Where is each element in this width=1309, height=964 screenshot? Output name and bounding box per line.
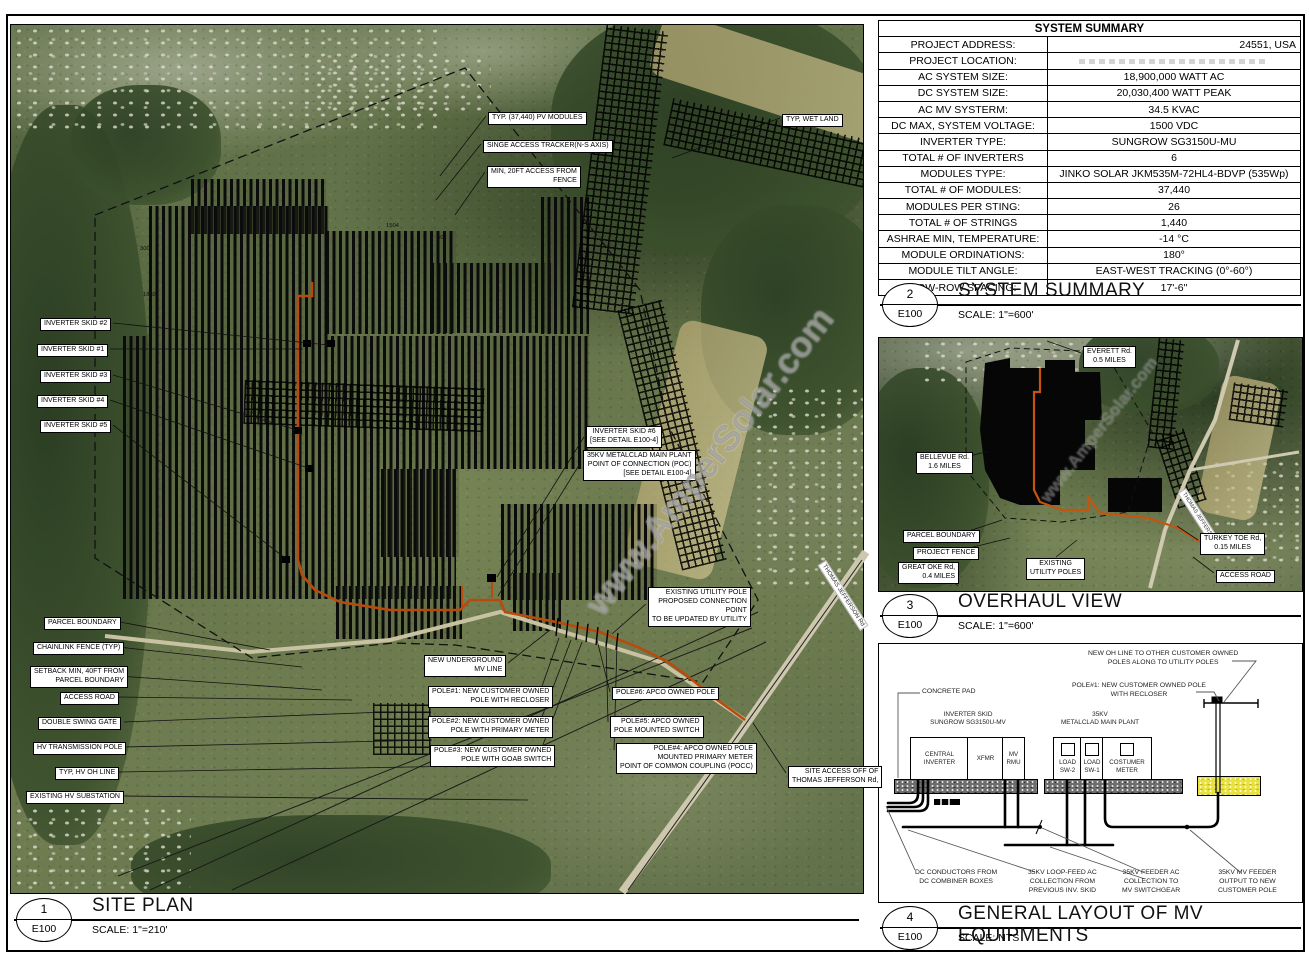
callout-pole1-recloser: POLE#1: NEW CUSTOMER OWNED POLE WITH REC… bbox=[1072, 682, 1206, 700]
switch-square-icon bbox=[1120, 743, 1134, 756]
suburb-patch bbox=[919, 338, 1079, 383]
summary-value: 6 bbox=[1048, 150, 1301, 166]
mv-box-load-sw2: LOAD SW-2 bbox=[1053, 737, 1082, 780]
summary-value: 26 bbox=[1048, 199, 1301, 215]
summary-row: MODULE ORDINATIONS:180° bbox=[879, 247, 1301, 263]
summary-label: MODULE ORDINATIONS: bbox=[879, 247, 1048, 263]
pv-array-block bbox=[381, 469, 459, 557]
callout-bellevue: BELLEVUE Rd. 1.6 MILES bbox=[916, 452, 973, 474]
callout-great-oke: GREAT OKE Rd, 0.4 MILES bbox=[898, 562, 959, 584]
summary-value: SUNGROW SG3150U-MU bbox=[1048, 134, 1301, 150]
callout-pole4: POLE#4: APCO OWNED POLE MOUNTED PRIMARY … bbox=[616, 743, 757, 774]
callout-parcel-boundary: PARCEL BOUNDARY bbox=[44, 617, 121, 630]
summary-row: AC SYSTEM SIZE:18,900,000 WATT AC bbox=[879, 69, 1301, 85]
system-summary-table: SYSTEM SUMMARY PROJECT ADDRESS:24551, US… bbox=[878, 20, 1301, 296]
pond-hatch bbox=[373, 703, 431, 755]
section-rule bbox=[14, 919, 859, 921]
callout-fence-access: MIN, 20FT ACCESS FROM FENCE bbox=[487, 166, 581, 188]
concrete-pad bbox=[894, 779, 1038, 794]
callout-skid4: INVERTER SKID #4 bbox=[37, 395, 108, 408]
summary-label: TOTAL # OF INVERTERS bbox=[879, 150, 1048, 166]
callout-d4: 1802 bbox=[143, 292, 156, 298]
summary-value: -14 °C bbox=[1048, 231, 1301, 247]
summary-value: 1500 VDC bbox=[1048, 118, 1301, 134]
summary-row: DC SYSTEM SIZE:20,030,400 WATT PEAK bbox=[879, 85, 1301, 101]
suburb-patch bbox=[11, 805, 191, 893]
summary-row: ASHRAE MIN, TEMPERATURE:-14 °C bbox=[879, 231, 1301, 247]
callout-site-access: SITE ACCESS OFF OF THOMAS JEFFERSON Rd, bbox=[788, 766, 882, 788]
section-bubble: 2 E100 bbox=[882, 283, 938, 327]
section-bubble: 3 E100 bbox=[882, 594, 938, 638]
section-bubble: 4 E100 bbox=[882, 906, 938, 950]
callout-swing-gate: DOUBLE SWING GATE bbox=[38, 717, 121, 730]
section-sheet: E100 bbox=[17, 919, 71, 938]
suburb-patch bbox=[311, 55, 491, 115]
pv-array-block bbox=[431, 263, 553, 333]
section-sheet: E100 bbox=[883, 615, 937, 634]
summary-label: PROJECT LOCATION: bbox=[879, 53, 1048, 69]
system-summary-title: SYSTEM SUMMARY bbox=[879, 21, 1301, 37]
callout-existing-utility-pole: EXISTING UTILITY POLE PROPOSED CONNECTIO… bbox=[648, 587, 751, 627]
callout-oh-line: NEW OH LINE TO OTHER CUSTOMER OWNED POLE… bbox=[1088, 650, 1238, 668]
section-1-titleblock: 1 E100 SITE PLAN SCALE: 1"=210' bbox=[14, 898, 859, 948]
callout-pole2: POLE#2: NEW CUSTOMER OWNED POLE WITH PRI… bbox=[428, 716, 553, 738]
callout-d3: 302 bbox=[437, 235, 447, 241]
callout-concrete-pad: CONCRETE PAD bbox=[922, 688, 976, 697]
summary-row: MODULES PER STING:26 bbox=[879, 199, 1301, 215]
summary-value bbox=[1048, 53, 1301, 69]
summary-label: AC SYSTEM SIZE: bbox=[879, 69, 1048, 85]
section-number: 1 bbox=[17, 899, 71, 919]
summary-value: 1,440 bbox=[1048, 215, 1301, 231]
summary-value: JINKO SOLAR JKM535M-72HL4-BDVP (535Wp) bbox=[1048, 166, 1301, 182]
summary-label: MODULE TILT ANGLE: bbox=[879, 263, 1048, 279]
callout-skid1: INVERTER SKID #1 bbox=[37, 344, 108, 357]
section-sheet: E100 bbox=[883, 927, 937, 946]
mv-box-label: CENTRAL INVERTER bbox=[924, 751, 955, 767]
mv-box-load-sw1: LOAD SW-1 bbox=[1080, 737, 1104, 780]
callout-setback: SETBACK MIN, 40FT FROM PARCEL BOUNDARY bbox=[30, 666, 128, 688]
summary-label: DC MAX, SYSTEM VOLTAGE: bbox=[879, 118, 1048, 134]
section-scale: SCALE: 1"=600' bbox=[958, 620, 1034, 632]
summary-row: PROJECT LOCATION: bbox=[879, 53, 1301, 69]
summary-label: MODULES PER STING: bbox=[879, 199, 1048, 215]
section-number: 3 bbox=[883, 595, 937, 615]
callout-tracker: SINGE ACCESS TRACKER(N-S AXIS) bbox=[483, 140, 613, 153]
pole-pad bbox=[1197, 776, 1261, 796]
summary-row: AC MV SYSTERM:34.5 KVAC bbox=[879, 101, 1301, 117]
callout-metalclad-group: 35KV METALCLAD MAIN PLANT bbox=[1048, 711, 1152, 728]
section-title: OVERHAUL VIEW bbox=[958, 591, 1122, 613]
summary-row: MODULES TYPE:JINKO SOLAR JKM535M-72HL4-B… bbox=[879, 166, 1301, 182]
mv-box-label: COSTUMER METER bbox=[1109, 759, 1144, 775]
mv-box-label: LOAD SW-1 bbox=[1084, 759, 1101, 775]
drawing-sheet: www.AmperSolar.com www.AmperSolar.com TH… bbox=[0, 0, 1309, 964]
pv-array-block bbox=[336, 586, 462, 639]
mv-box-mv-rmu: MV RMU bbox=[1002, 737, 1025, 780]
redacted-text bbox=[1079, 59, 1269, 64]
switch-square-icon bbox=[1061, 743, 1075, 756]
pv-array-block bbox=[149, 206, 329, 336]
summary-label: TOTAL # OF MODULES: bbox=[879, 182, 1048, 198]
callout-pole3: POLE#3: NEW CUSTOMER OWNED POLE WITH GOA… bbox=[430, 745, 555, 767]
wetland-hatch bbox=[243, 380, 484, 432]
mv-box-label: MV RMU bbox=[1006, 751, 1020, 767]
summary-value: 24551, USA bbox=[1048, 37, 1301, 53]
section-bubble: 1 E100 bbox=[16, 898, 72, 942]
summary-row: TOTAL # OF MODULES:37,440 bbox=[879, 182, 1301, 198]
callout-skid5: INVERTER SKID #5 bbox=[40, 420, 111, 433]
callout-project-fence: PROJECT FENCE bbox=[913, 547, 979, 560]
callout-poc: 35KV METALCLAD MAIN PLANT POINT OF CONNE… bbox=[583, 450, 696, 481]
section-rule bbox=[880, 304, 1301, 306]
mv-box-xfmr: XFMR bbox=[967, 737, 1004, 780]
summary-row: DC MAX, SYSTEM VOLTAGE:1500 VDC bbox=[879, 118, 1301, 134]
section-scale: SCALE: NTS bbox=[958, 932, 1019, 944]
summary-label: DC SYSTEM SIZE: bbox=[879, 85, 1048, 101]
pv-array-block bbox=[513, 573, 561, 631]
callout-parcel-boundary-ov: PARCEL BOUNDARY bbox=[903, 530, 980, 543]
section-title: SITE PLAN bbox=[92, 895, 194, 917]
section-3-titleblock: 3 E100 OVERHAUL VIEW SCALE: 1"=600' bbox=[880, 594, 1301, 644]
callout-mv-feeder: 35KV MV FEEDER OUTPUT TO NEW CUSTOMER PO… bbox=[1218, 869, 1277, 895]
callout-turkey-toe: TURKEY TOE Rd, 0.15 MILES bbox=[1200, 533, 1265, 555]
summary-value: 20,030,400 WATT PEAK bbox=[1048, 85, 1301, 101]
section-number: 2 bbox=[883, 284, 937, 304]
summary-label: PROJECT ADDRESS: bbox=[879, 37, 1048, 53]
callout-d1: 300 bbox=[140, 246, 150, 252]
callout-feeder-ac: 35KV FEEDER AC COLLECTION TO MV SWITCHGE… bbox=[1122, 869, 1180, 895]
callout-dc-conductors: DC CONDUCTORS FROM DC COMBINER BOXES bbox=[915, 869, 997, 887]
summary-label: TOTAL # OF STRINGS bbox=[879, 215, 1048, 231]
summary-label: AC MV SYSTERM: bbox=[879, 101, 1048, 117]
summary-row: TOTAL # OF STRINGS1,440 bbox=[879, 215, 1301, 231]
callout-chainlink: CHAINLINK FENCE (TYP) bbox=[33, 642, 124, 655]
mv-box-central-inverter: CENTRAL INVERTER bbox=[910, 737, 969, 780]
callout-skid2: INVERTER SKID #2 bbox=[40, 318, 111, 331]
callout-wetland: TYP, WET LAND bbox=[782, 114, 843, 127]
callout-access-road-ov: ACCESS ROAD bbox=[1216, 570, 1275, 583]
summary-row: MODULE TILT ANGLE:EAST-WEST TRACKING (0°… bbox=[879, 263, 1301, 279]
callout-hv-oh-line: TYP, HV OH LINE bbox=[55, 767, 119, 780]
callout-pv-modules: TYP. (37,440) PV MODULES bbox=[488, 112, 587, 125]
section-number: 4 bbox=[883, 907, 937, 927]
section-sheet: E100 bbox=[883, 304, 937, 323]
summary-value: 18,900,000 WATT AC bbox=[1048, 69, 1301, 85]
callout-pole1: POLE#1: NEW CUSTOMER OWNED POLE WITH REC… bbox=[428, 686, 553, 708]
callout-hv-pole: HV TRANSMISSION POLE bbox=[33, 742, 126, 755]
summary-value: 37,440 bbox=[1048, 182, 1301, 198]
callout-new-mv-line: NEW UNDERGROUND MV LINE bbox=[424, 655, 506, 677]
summary-label: ASHRAE MIN, TEMPERATURE: bbox=[879, 231, 1048, 247]
callout-existing-utility-poles-ov: EXISTING UTILITY POLES bbox=[1026, 558, 1085, 580]
summary-row: TOTAL # OF INVERTERS6 bbox=[879, 150, 1301, 166]
forest-patch bbox=[131, 815, 551, 894]
summary-row: PROJECT ADDRESS:24551, USA bbox=[879, 37, 1301, 53]
callout-d2: 1504 bbox=[386, 223, 399, 229]
callout-skid6: INVERTER SKID #6 [SEE DETAIL E100-4] bbox=[586, 426, 662, 448]
wetland-hatch bbox=[1229, 382, 1289, 427]
summary-row: INVERTER TYPE:SUNGROW SG3150U-MU bbox=[879, 134, 1301, 150]
switch-square-icon bbox=[1085, 743, 1099, 756]
section-title: SYSTEM SUMMARY bbox=[958, 280, 1145, 302]
callout-access-road: ACCESS ROAD bbox=[60, 692, 119, 705]
mv-box-label: XFMR bbox=[977, 755, 995, 763]
callout-pole5: POLE#5: APCO OWNED POLE MOUNTED SWITCH bbox=[610, 716, 704, 738]
section-rule bbox=[880, 615, 1301, 617]
concrete-pad bbox=[1044, 779, 1183, 794]
mv-box-label: LOAD SW-2 bbox=[1059, 759, 1076, 775]
summary-value: 34.5 KVAC bbox=[1048, 101, 1301, 117]
callout-pole6: POLE#6: APCO OWNED POLE bbox=[612, 687, 719, 700]
mv-box-costumer-meter: COSTUMER METER bbox=[1102, 737, 1152, 780]
suburb-patch bbox=[751, 385, 863, 585]
summary-label: MODULES TYPE: bbox=[879, 166, 1048, 182]
section-2-titleblock: 2 E100 SYSTEM SUMMARY SCALE: 1"=600' bbox=[880, 283, 1301, 333]
callout-skid3: INVERTER SKID #3 bbox=[40, 370, 111, 383]
callout-everett: EVERETT Rd. 0.5 MILES bbox=[1083, 346, 1136, 368]
section-scale: SCALE: 1"=600' bbox=[958, 309, 1034, 321]
section-4-titleblock: 4 E100 GENERAL LAYOUT OF MV EQUIPMENTS S… bbox=[880, 906, 1301, 956]
section-scale: SCALE: 1"=210' bbox=[92, 924, 168, 936]
callout-loop-feed: 35KV LOOP-FEED AC COLLECTION FROM PREVIO… bbox=[1028, 869, 1097, 895]
summary-value: 180° bbox=[1048, 247, 1301, 263]
callout-hv-substation: EXISTING HV SUBSTATION bbox=[26, 791, 124, 804]
summary-label: INVERTER TYPE: bbox=[879, 134, 1048, 150]
summary-value: EAST-WEST TRACKING (0°-60°) bbox=[1048, 263, 1301, 279]
callout-inverter-skid-group: INVERTER SKID SUNGROW SG3150U-MV bbox=[912, 711, 1024, 728]
